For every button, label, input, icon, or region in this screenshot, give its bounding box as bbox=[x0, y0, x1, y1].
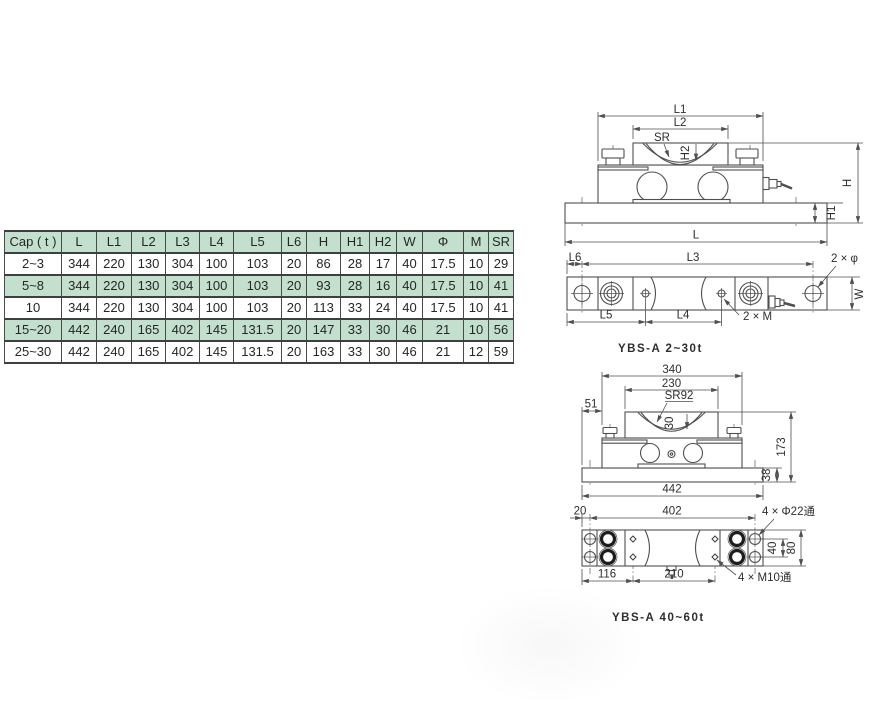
table-cell: 165 bbox=[132, 341, 166, 363]
dim-label-340: 340 bbox=[662, 364, 681, 376]
table-cell: 304 bbox=[166, 275, 200, 297]
roller bbox=[641, 444, 660, 463]
spec-table-header-row: Cap ( t )LL1L2L3L4L5L6HH1H2WΦMSR bbox=[5, 231, 514, 253]
table-row: 5~8344220130304100103209328164017.51041 bbox=[5, 275, 514, 297]
spec-sheet-page: Cap ( t )LL1L2L3L4L5L6HH1H2WΦMSR 2~33442… bbox=[0, 0, 878, 711]
dim-label-80: 80 bbox=[786, 542, 798, 555]
table-cell: 220 bbox=[97, 297, 132, 319]
large-model-bottom-view: 20 402 4 × Φ22通 40 80 4 × M10通 116 210 bbox=[570, 505, 815, 585]
dim-label-h1: H1 bbox=[826, 206, 838, 221]
callout-2xm: 2 × M bbox=[743, 311, 772, 323]
column-header: W bbox=[397, 231, 423, 253]
spec-table: Cap ( t )LL1L2L3L4L5L6HH1H2WΦMSR 2~33442… bbox=[4, 230, 514, 364]
table-cell: 103 bbox=[234, 275, 282, 297]
column-header: L3 bbox=[166, 231, 200, 253]
table-cell: 2~3 bbox=[5, 253, 62, 275]
table-cell: 130 bbox=[132, 253, 166, 275]
table-cell: 5~8 bbox=[5, 275, 62, 297]
roller bbox=[637, 172, 667, 202]
base-plate bbox=[565, 203, 827, 223]
table-cell: 103 bbox=[234, 297, 282, 319]
column-header: L4 bbox=[200, 231, 234, 253]
table-cell: 33 bbox=[341, 341, 370, 363]
table-cell: 130 bbox=[132, 275, 166, 297]
table-cell: 17 bbox=[370, 253, 397, 275]
table-cell: 10 bbox=[464, 297, 489, 319]
dim-label-w: W bbox=[854, 288, 866, 299]
table-row: 15~20442240165402145131.5201473330462110… bbox=[5, 319, 514, 341]
table-cell: 240 bbox=[97, 319, 132, 341]
dim-label-230: 230 bbox=[662, 378, 681, 390]
table-cell: 402 bbox=[166, 319, 200, 341]
table-cell: 33 bbox=[341, 319, 370, 341]
table-cell: 59 bbox=[489, 341, 514, 363]
callout-4xphi22: 4 × Φ22通 bbox=[762, 505, 815, 518]
dim-label-116: 116 bbox=[598, 569, 616, 581]
table-cell: 20 bbox=[282, 297, 307, 319]
table-cell: 29 bbox=[489, 253, 514, 275]
table-cell: 21 bbox=[423, 341, 464, 363]
column-header: H1 bbox=[341, 231, 370, 253]
table-cell: 10 bbox=[464, 275, 489, 297]
column-header: Cap ( t ) bbox=[5, 231, 62, 253]
table-row: 25~30442240165402145131.5201633330462112… bbox=[5, 341, 514, 363]
table-cell: 103 bbox=[234, 253, 282, 275]
dim-label-442: 442 bbox=[662, 484, 681, 496]
column-header: H2 bbox=[370, 231, 397, 253]
table-cell: 86 bbox=[307, 253, 341, 275]
table-cell: 402 bbox=[166, 341, 200, 363]
column-header: L5 bbox=[234, 231, 282, 253]
body-block bbox=[598, 165, 763, 203]
dim-label-210: 210 bbox=[664, 569, 683, 581]
table-cell: 442 bbox=[62, 341, 97, 363]
table-cell: 40 bbox=[397, 297, 423, 319]
table-cell: 17.5 bbox=[423, 297, 464, 319]
spec-table-head: Cap ( t )LL1L2L3L4L5L6HH1H2WΦMSR bbox=[5, 231, 514, 253]
table-cell: 240 bbox=[97, 341, 132, 363]
small-model-title: YBS-A 2~30t bbox=[618, 343, 703, 355]
dim-label-l2: L2 bbox=[674, 117, 687, 129]
table-cell: 33 bbox=[341, 297, 370, 319]
table-cell: 24 bbox=[370, 297, 397, 319]
table-cell: 46 bbox=[397, 319, 423, 341]
table-row: 2~3344220130304100103208628174017.51029 bbox=[5, 253, 514, 275]
callout-2xphi: 2 × φ bbox=[831, 253, 858, 265]
column-header: SR bbox=[489, 231, 514, 253]
table-cell: 17.5 bbox=[423, 253, 464, 275]
table-cell: 100 bbox=[200, 253, 234, 275]
technical-drawings: L1 L2 SR H2 H H1 L bbox=[550, 85, 878, 645]
spec-table-body: 2~3344220130304100103208628174017.510295… bbox=[5, 253, 514, 363]
table-row: 103442201303041001032011333244017.51041 bbox=[5, 297, 514, 319]
table-cell: 344 bbox=[62, 297, 97, 319]
table-cell: 41 bbox=[489, 297, 514, 319]
table-cell: 220 bbox=[97, 253, 132, 275]
table-cell: 163 bbox=[307, 341, 341, 363]
base-plate bbox=[582, 468, 763, 482]
table-cell: 41 bbox=[489, 275, 514, 297]
table-cell: 20 bbox=[282, 253, 307, 275]
dim-label-l6: L6 bbox=[569, 252, 582, 264]
callout-4xm10: 4 × M10通 bbox=[738, 571, 792, 584]
table-cell: 165 bbox=[132, 319, 166, 341]
table-cell: 131.5 bbox=[234, 319, 282, 341]
column-header: L bbox=[62, 231, 97, 253]
dim-label-l3: L3 bbox=[687, 252, 700, 264]
table-cell: 10 bbox=[464, 253, 489, 275]
dim-label-51: 51 bbox=[585, 399, 598, 411]
table-cell: 304 bbox=[166, 297, 200, 319]
small-model-front-view: L1 L2 SR H2 H H1 L bbox=[565, 104, 863, 246]
roller bbox=[684, 444, 703, 463]
table-cell: 220 bbox=[97, 275, 132, 297]
table-cell: 100 bbox=[200, 297, 234, 319]
table-cell: 93 bbox=[307, 275, 341, 297]
table-cell: 30 bbox=[370, 319, 397, 341]
table-cell: 28 bbox=[341, 253, 370, 275]
large-model-title: YBS-A 40~60t bbox=[612, 612, 705, 624]
dim-label-h: H bbox=[842, 179, 854, 187]
dim-label-20: 20 bbox=[574, 506, 587, 518]
dim-label-38: 38 bbox=[761, 469, 773, 482]
table-cell: 56 bbox=[489, 319, 514, 341]
table-cell: 10 bbox=[5, 297, 62, 319]
dim-label-402: 402 bbox=[662, 506, 681, 518]
dim-label-30: 30 bbox=[664, 417, 676, 430]
table-cell: 442 bbox=[62, 319, 97, 341]
table-cell: 113 bbox=[307, 297, 341, 319]
table-cell: 17.5 bbox=[423, 275, 464, 297]
dim-label-h2: H2 bbox=[680, 146, 692, 161]
table-cell: 16 bbox=[370, 275, 397, 297]
dim-label-l: L bbox=[693, 230, 700, 242]
column-header: H bbox=[307, 231, 341, 253]
roller bbox=[698, 172, 728, 202]
dim-label-173: 173 bbox=[776, 437, 788, 456]
table-cell: 130 bbox=[132, 297, 166, 319]
dim-label-l4: L4 bbox=[677, 310, 690, 322]
table-cell: 40 bbox=[397, 253, 423, 275]
table-cell: 25~30 bbox=[5, 341, 62, 363]
table-cell: 145 bbox=[200, 341, 234, 363]
table-cell: 40 bbox=[397, 275, 423, 297]
table-cell: 12 bbox=[464, 341, 489, 363]
large-model-front-view: 340 230 SR92 30 51 173 38 442 bbox=[582, 364, 796, 500]
table-cell: 344 bbox=[62, 275, 97, 297]
dim-label-l5: L5 bbox=[600, 310, 613, 322]
dim-label-40: 40 bbox=[767, 542, 779, 555]
column-header: Φ bbox=[423, 231, 464, 253]
table-cell: 131.5 bbox=[234, 341, 282, 363]
column-header: L1 bbox=[97, 231, 132, 253]
column-header: L2 bbox=[132, 231, 166, 253]
cable-gland bbox=[763, 178, 792, 190]
table-cell: 10 bbox=[464, 319, 489, 341]
dim-label-sr: SR bbox=[654, 132, 670, 144]
table-cell: 21 bbox=[423, 319, 464, 341]
table-cell: 46 bbox=[397, 341, 423, 363]
column-header: M bbox=[464, 231, 489, 253]
table-cell: 30 bbox=[370, 341, 397, 363]
table-cell: 145 bbox=[200, 319, 234, 341]
table-cell: 20 bbox=[282, 275, 307, 297]
table-cell: 15~20 bbox=[5, 319, 62, 341]
dim-label-l1: L1 bbox=[674, 104, 687, 116]
table-cell: 28 bbox=[341, 275, 370, 297]
table-cell: 304 bbox=[166, 253, 200, 275]
column-header: L6 bbox=[282, 231, 307, 253]
table-cell: 344 bbox=[62, 253, 97, 275]
table-cell: 20 bbox=[282, 319, 307, 341]
table-cell: 20 bbox=[282, 341, 307, 363]
small-model-top-view: L6 L3 2 × φ W L5 L4 2 × M bbox=[567, 252, 866, 326]
table-cell: 147 bbox=[307, 319, 341, 341]
dim-label-sr92: SR92 bbox=[665, 390, 694, 402]
table-cell: 100 bbox=[200, 275, 234, 297]
